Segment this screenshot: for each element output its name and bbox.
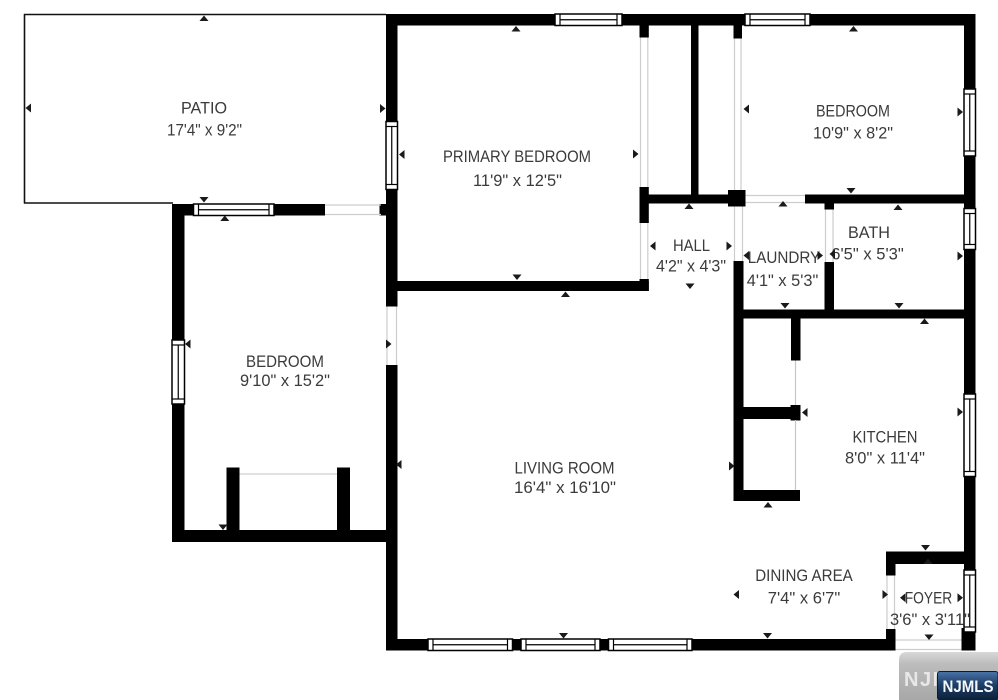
- svg-text:KITCHEN: KITCHEN: [853, 429, 918, 447]
- svg-text:BEDROOM: BEDROOM: [246, 353, 324, 371]
- svg-text:10'9" x 8'2": 10'9" x 8'2": [813, 125, 893, 143]
- svg-text:16'4" x 16'10": 16'4" x 16'10": [514, 479, 616, 497]
- svg-text:9'10" x 15'2": 9'10" x 15'2": [240, 372, 330, 390]
- svg-text:17'4" x 9'2": 17'4" x 9'2": [167, 122, 242, 140]
- svg-text:4'2" x 4'3": 4'2" x 4'3": [656, 258, 726, 276]
- svg-text:11'9" x 12'5": 11'9" x 12'5": [473, 172, 562, 190]
- svg-text:7'4" x 6'7": 7'4" x 6'7": [768, 590, 841, 608]
- svg-text:DINING AREA: DINING AREA: [755, 567, 853, 585]
- svg-text:BEDROOM: BEDROOM: [816, 103, 890, 121]
- svg-text:PATIO: PATIO: [181, 100, 227, 118]
- svg-text:LAUNDRY: LAUNDRY: [748, 249, 821, 267]
- svg-text:6'5" x 5'3": 6'5" x 5'3": [831, 246, 904, 264]
- svg-text:4'1" x 5'3": 4'1" x 5'3": [747, 272, 819, 290]
- svg-text:NJMLS: NJMLS: [943, 677, 994, 696]
- svg-text:FOYER: FOYER: [905, 590, 953, 608]
- svg-text:LIVING ROOM: LIVING ROOM: [515, 460, 615, 478]
- svg-text:3'6" x 3'11": 3'6" x 3'11": [890, 611, 970, 629]
- svg-text:8'0" x 11'4": 8'0" x 11'4": [845, 450, 925, 468]
- svg-text:PRIMARY BEDROOM: PRIMARY BEDROOM: [443, 148, 591, 166]
- svg-text:BATH: BATH: [848, 224, 890, 242]
- svg-text:HALL: HALL: [673, 237, 710, 255]
